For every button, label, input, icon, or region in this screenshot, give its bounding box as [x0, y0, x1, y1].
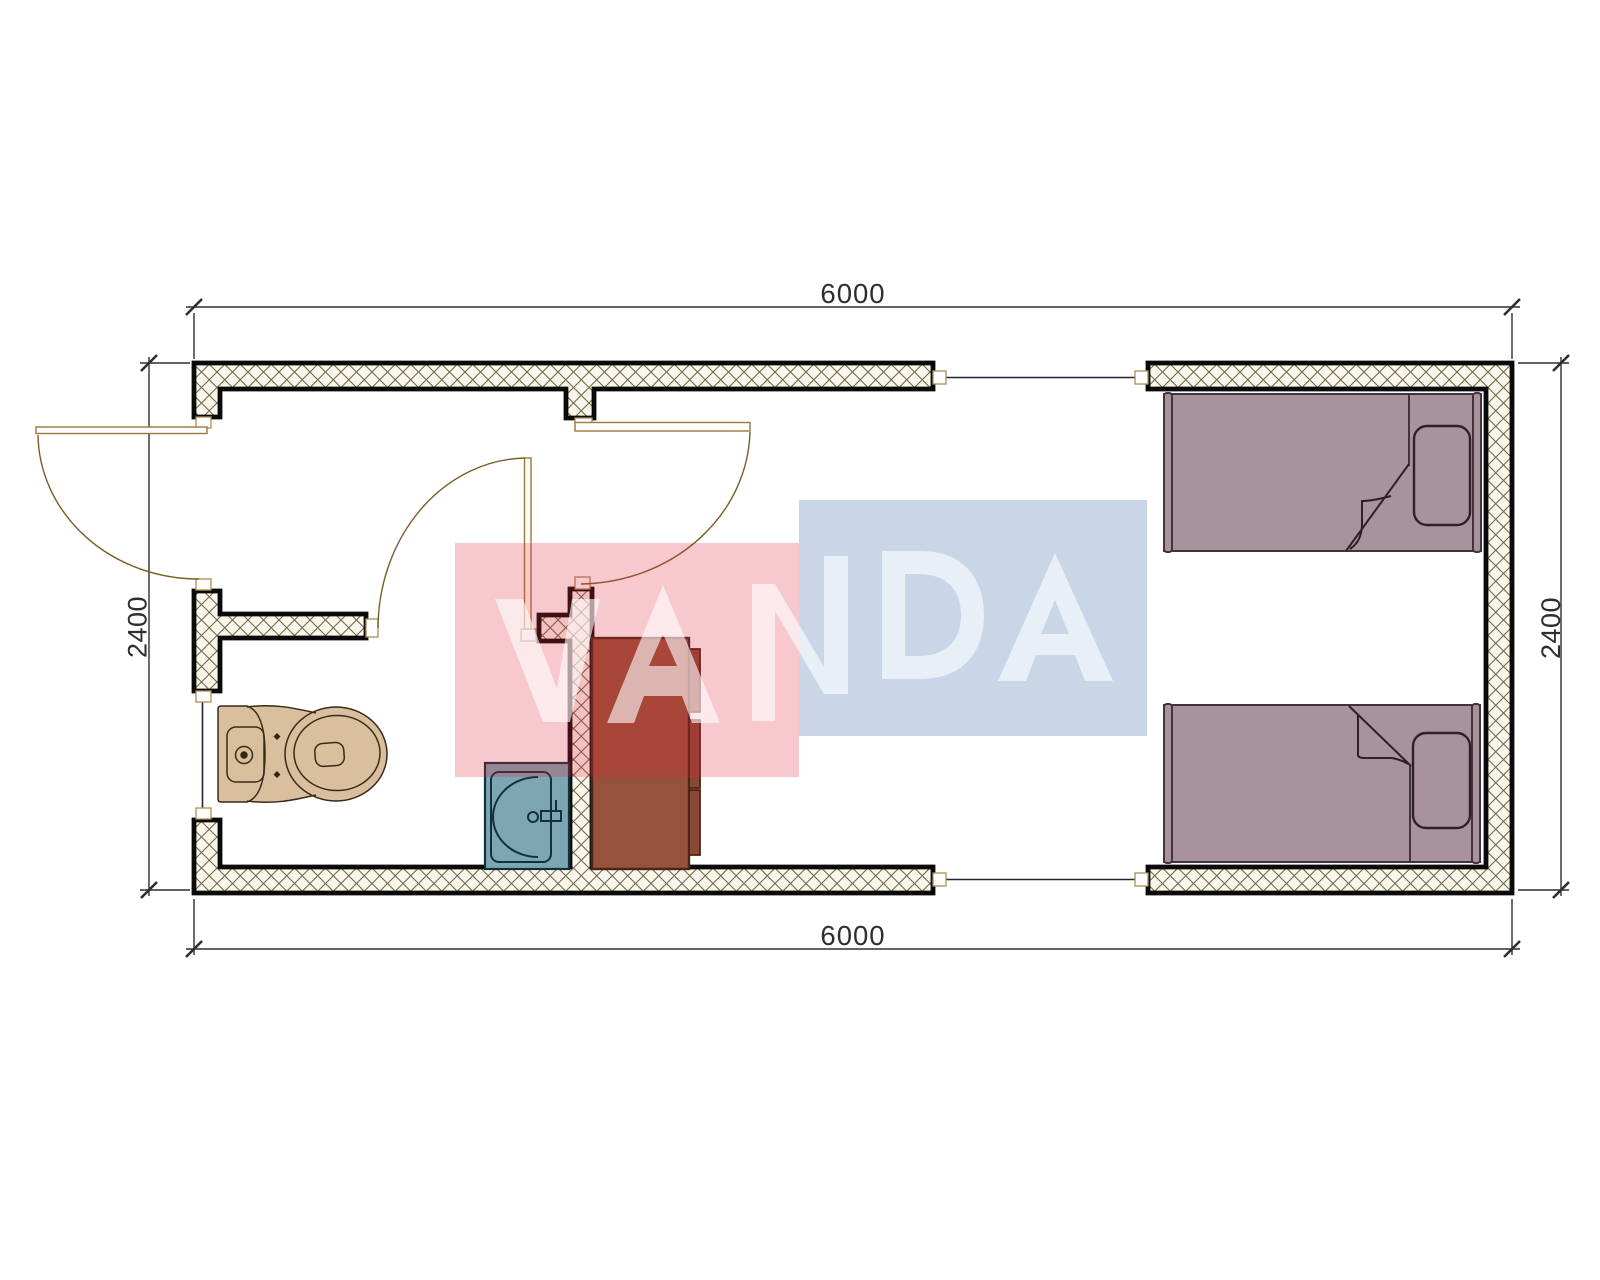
svg-text:6000: 6000 [820, 920, 885, 951]
svg-text:2400: 2400 [1536, 597, 1566, 659]
svg-text:2400: 2400 [123, 596, 153, 658]
svg-text:6000: 6000 [820, 278, 885, 309]
